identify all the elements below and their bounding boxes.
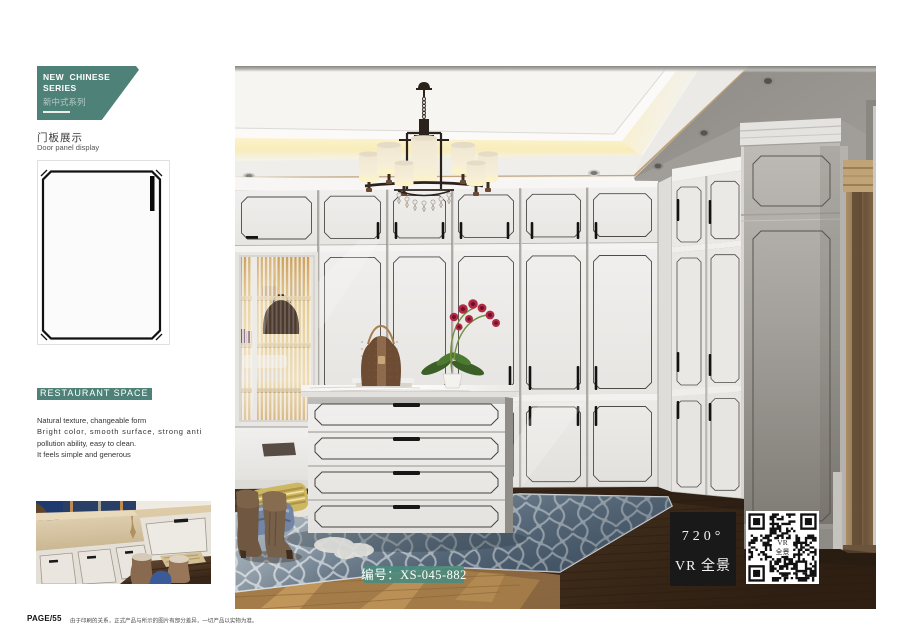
svg-text:VR: VR bbox=[777, 538, 787, 547]
svg-text:720°: 720° bbox=[682, 529, 725, 544]
svg-text:VR 全景: VR 全景 bbox=[675, 557, 731, 574]
svg-text:全景: 全景 bbox=[776, 547, 790, 556]
svg-text:编号：XS-045-882: 编号：XS-045-882 bbox=[361, 567, 467, 582]
